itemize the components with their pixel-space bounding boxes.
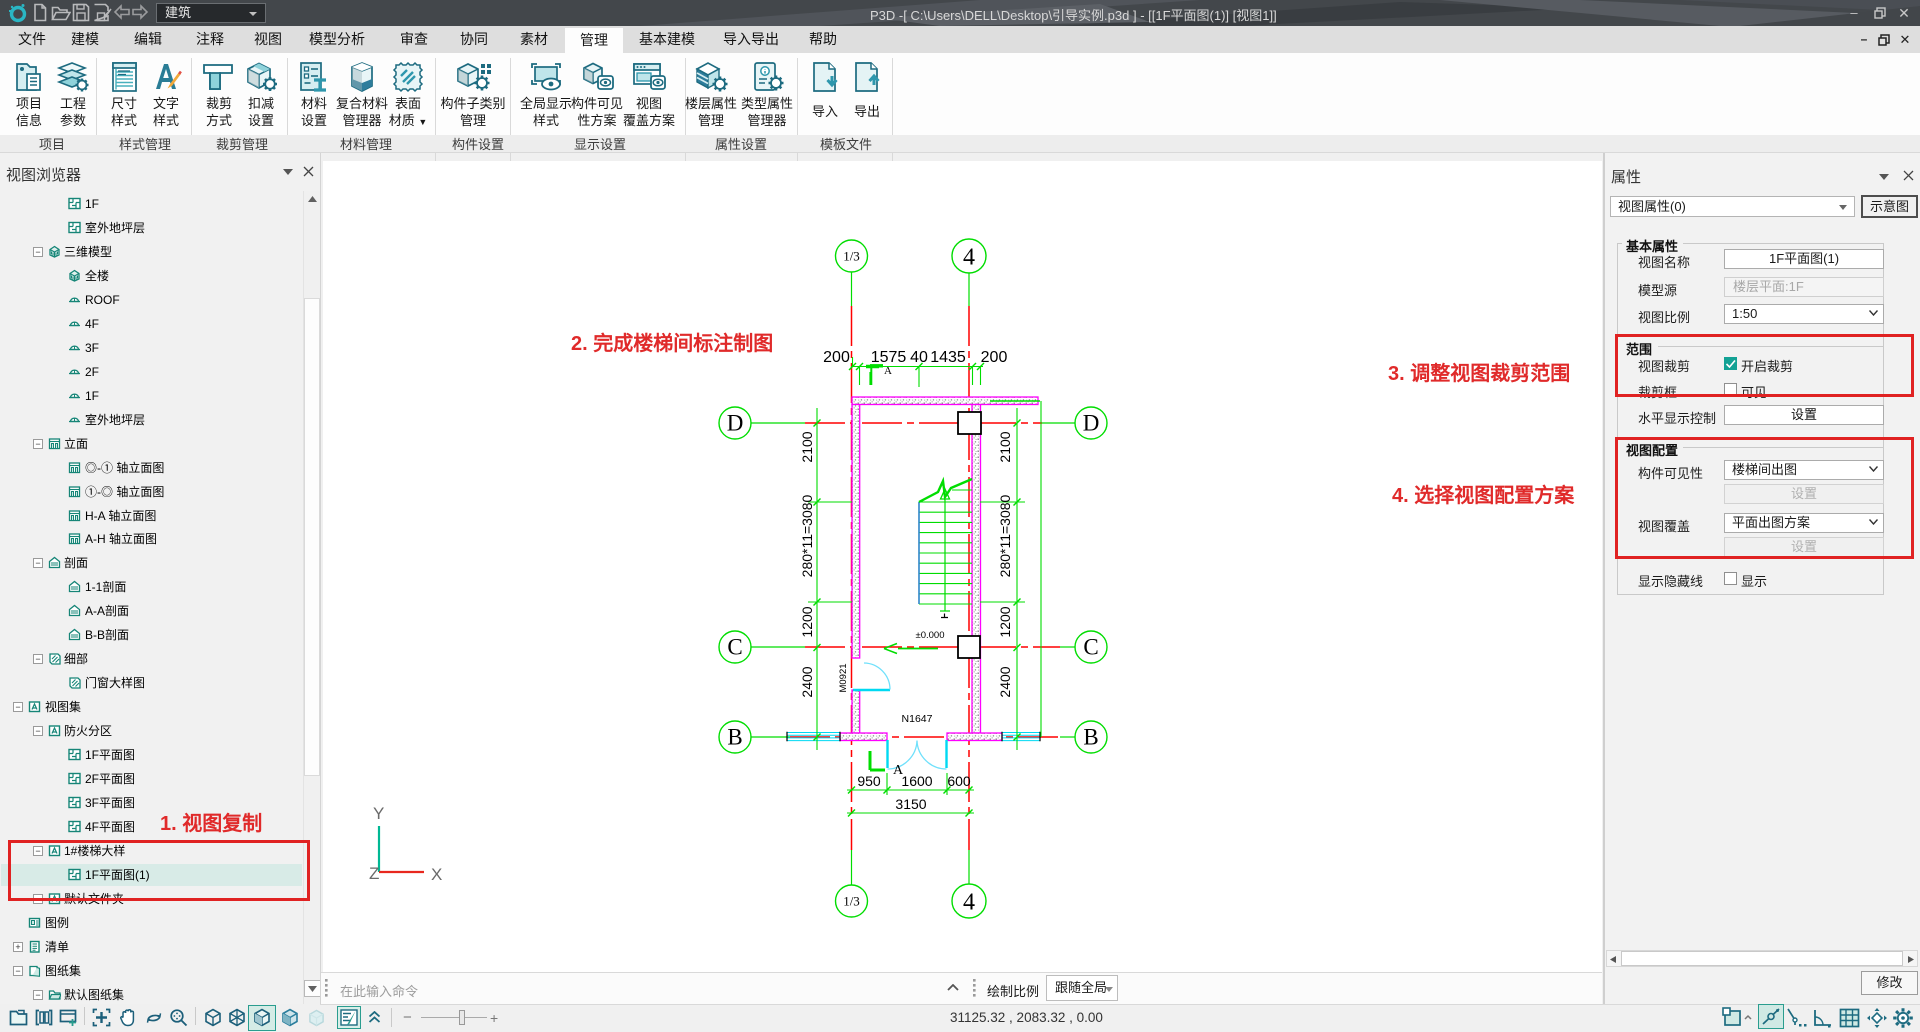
svg-text:N1647: N1647 — [902, 713, 933, 725]
svg-text:Y: Y — [373, 804, 384, 823]
svg-text:4: 4 — [963, 890, 975, 916]
svg-text:B: B — [1083, 725, 1098, 750]
svg-text:C: C — [727, 635, 742, 660]
svg-text:600: 600 — [947, 773, 971, 789]
svg-text:40: 40 — [910, 349, 928, 366]
svg-text:2400: 2400 — [799, 666, 815, 697]
svg-text:1/3: 1/3 — [843, 894, 860, 909]
svg-text:200: 200 — [823, 349, 850, 366]
svg-text:1200: 1200 — [997, 606, 1013, 637]
svg-text:±0.000: ±0.000 — [916, 630, 945, 641]
svg-text:1600: 1600 — [901, 773, 932, 789]
svg-text:2100: 2100 — [997, 431, 1013, 462]
svg-text:1435: 1435 — [930, 349, 966, 366]
svg-text:Z: Z — [369, 864, 379, 883]
svg-text:X: X — [431, 865, 442, 884]
svg-text:3150: 3150 — [895, 796, 926, 812]
svg-text:D: D — [1083, 411, 1100, 436]
svg-text:2100: 2100 — [799, 431, 815, 462]
svg-text:M0921: M0921 — [838, 663, 849, 692]
svg-text:280*11=3080: 280*11=3080 — [997, 494, 1013, 577]
svg-text:1/3: 1/3 — [843, 249, 860, 264]
svg-text:4: 4 — [963, 245, 975, 271]
svg-text:2400: 2400 — [997, 666, 1013, 697]
svg-text:950: 950 — [857, 773, 881, 789]
svg-text:1200: 1200 — [799, 606, 815, 637]
svg-text:1575: 1575 — [871, 349, 907, 366]
svg-text:C: C — [1083, 635, 1098, 660]
svg-text:B: B — [727, 725, 742, 750]
svg-text:D: D — [727, 411, 744, 436]
svg-text:280*11=3080: 280*11=3080 — [799, 494, 815, 577]
svg-text:200: 200 — [981, 349, 1008, 366]
